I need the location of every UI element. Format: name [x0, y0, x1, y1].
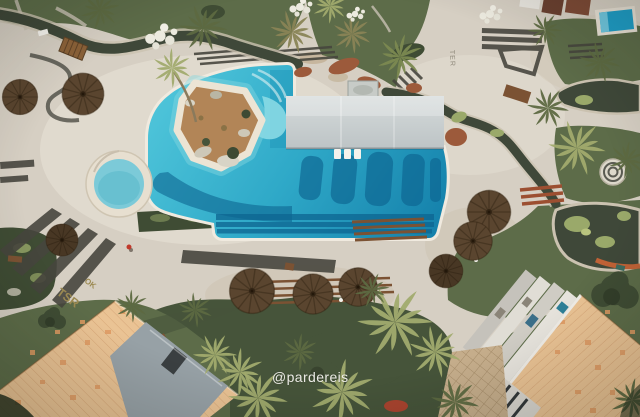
resort-aerial-photo: TER OK TSR @pardereis: [0, 0, 640, 417]
watermark: @pardereis: [272, 369, 349, 385]
photo-vignette: [0, 0, 640, 417]
photo-canvas: TER OK TSR: [0, 0, 640, 417]
